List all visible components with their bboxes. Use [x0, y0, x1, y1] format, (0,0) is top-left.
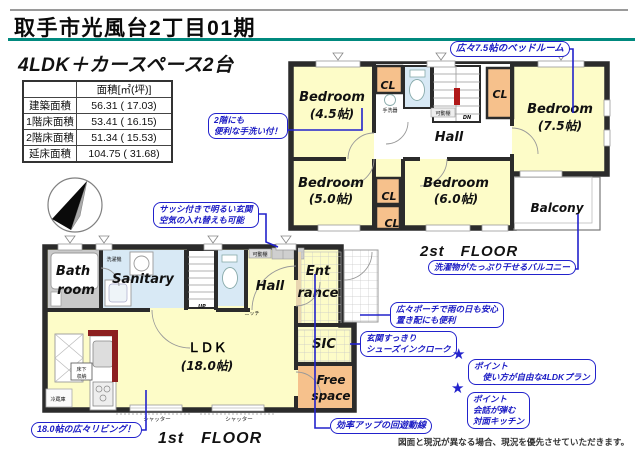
table-row: 建築面積 56.31 ( 17.03) — [23, 98, 172, 114]
balcony-label: Balcony — [530, 201, 584, 215]
floor-storage-label-1: 床下 — [76, 366, 86, 373]
closet-label: CL — [384, 217, 399, 230]
shutter-label: シャッター — [225, 415, 253, 423]
callout-line: 対面キッチン — [473, 416, 524, 427]
kitchen-wall-red — [88, 330, 118, 336]
washer-label: 洗濯機 — [106, 256, 121, 263]
table-row: 延床面積 104.75 ( 31.68) — [23, 146, 172, 163]
toilet-room-1f — [218, 250, 246, 306]
closet-label: CL — [492, 88, 507, 101]
stove-icon — [93, 382, 113, 406]
bedroom60-label: Bedroom — [423, 176, 489, 191]
hand-basin-label: 手洗器 — [382, 107, 397, 114]
fridge-label: 冷蔵庫 — [50, 396, 65, 403]
hand-basin-icon — [385, 95, 396, 106]
toilet-room-2f — [404, 66, 431, 108]
bedroom50-label: Bedroom — [298, 176, 364, 191]
area-table-header: 面積[㎡(坪)] — [77, 81, 173, 98]
callout-hand-basin: 2階にも 便利な手洗い付！ — [208, 113, 288, 139]
callout-line: 2階にも — [214, 115, 282, 126]
stair-rail-mark — [454, 88, 460, 105]
row-value: 104.75 ( 31.68) — [77, 146, 173, 163]
bedroom75-label: Bedroom — [527, 102, 593, 117]
sink-icon — [93, 341, 113, 367]
row-value: 53.41 ( 16.15) — [77, 114, 173, 130]
ldk-label: ＬＤＫ — [187, 341, 226, 356]
north-compass-icon — [48, 178, 102, 232]
movable-shelf-label-1f: 可動棚 — [252, 251, 267, 258]
up-stairs-label: UP — [198, 304, 206, 310]
bath-label-1: Bath — [56, 264, 90, 279]
entrance-label-2: rance — [298, 286, 339, 301]
ldk-size-label: (18.0帖) — [181, 359, 234, 373]
area-table: 面積[㎡(坪)] 建築面積 56.31 ( 17.03) 1階床面積 53.41… — [22, 80, 173, 163]
down-stairs-label: DN — [463, 115, 472, 121]
porch — [344, 250, 378, 322]
toilet-tank-icon — [410, 70, 425, 77]
hall1f-label: Hall — [256, 279, 285, 294]
floor1-name: 1st FLOOR — [158, 424, 262, 448]
movable-shelf-label: 可動棚 — [435, 110, 450, 117]
callout-sic: 玄関すっきり シューズインクローク — [360, 331, 457, 357]
point-heading: ポイント — [473, 394, 524, 405]
bedroom50-size: (5.0帖) — [309, 192, 353, 206]
stairs-1f — [188, 250, 216, 308]
area-table-corner — [23, 81, 77, 98]
toilet-bowl-icon — [410, 80, 425, 101]
free-space-label-1: Free — [316, 373, 345, 387]
bath-label-2: room — [57, 283, 95, 298]
bedroom75-size: (7.5帖) — [538, 119, 582, 133]
shutter-label: シャッター — [143, 415, 171, 423]
second-floor-plan: Bedroom (4.5帖) Bedroom (7.5帖) Bedroom (5… — [291, 53, 610, 231]
entrance-label-1: Ent — [306, 264, 331, 279]
callout-line: 広々ポーチで雨の日も安心 — [396, 304, 498, 315]
row-label: 2階床面積 — [23, 130, 77, 146]
callout-line: 便利な手洗い付！ — [214, 126, 282, 137]
hall2f-label: Hall — [435, 130, 464, 145]
callout-line: 置き配にも便利 — [396, 315, 498, 326]
callout-point2: ポイント 会話が弾む 対面キッチン — [467, 392, 530, 429]
callout-line: シューズインクローク — [366, 344, 451, 355]
callout-line: 会話が弾む — [473, 405, 524, 416]
closet-label: CL — [381, 190, 396, 203]
callout-line: 玄関すっきり — [366, 333, 451, 344]
floor2-name: 2st FLOOR — [420, 240, 518, 261]
sanitary-label: Sanitary — [112, 272, 174, 287]
first-floor-plan: Bath room 洗濯機 Sanitary UP 可動棚 Hall ニッチ E… — [45, 236, 378, 423]
callout-bedroom75: 広々7.5帖のベッドルーム — [450, 41, 570, 57]
free-space-label-2: space — [311, 389, 350, 403]
bedroom45-size: (4.5帖) — [310, 107, 354, 121]
flyer-page: 取手市光風台2丁目01期 4LDK＋カースペース2台 面積[㎡(坪)] 建築面積… — [0, 0, 640, 453]
bedroom60-size: (6.0帖) — [434, 192, 478, 206]
callout-line: 空気の入れ替えも可能 — [159, 215, 253, 226]
table-row: 2階床面積 51.34 ( 15.53) — [23, 130, 172, 146]
row-value: 56.31 ( 17.03) — [77, 98, 173, 114]
closet-label: CL — [380, 79, 395, 92]
point-heading: ポイント — [474, 361, 590, 372]
row-label: 建築面積 — [23, 98, 77, 114]
row-value: 51.34 ( 15.53) — [77, 130, 173, 146]
callout-balcony: 洗濯物がたっぷり干せるバルコニー — [428, 260, 576, 275]
callout-sash: サッシ付きで明るい玄関 空気の入れ替えも可能 — [153, 202, 259, 228]
table-row: 面積[㎡(坪)] — [23, 81, 172, 98]
star-icon: ★ — [452, 347, 465, 362]
bedroom45-label: Bedroom — [299, 90, 365, 105]
row-label: 1階床面積 — [23, 114, 77, 130]
floor-storage-label-2: 収納 — [76, 373, 86, 380]
callout-point1: ポイント 使い方が自由な4LDKプラン — [468, 359, 596, 385]
star-icon: ★ — [451, 381, 464, 396]
callout-circulation: 効率アップの回遊動線 — [330, 418, 432, 434]
disclaimer-text: 図面と現況が異なる場合、現況を優先させていただきます。 — [398, 436, 629, 448]
callout-living: 18.0帖の広々リビング！ — [31, 422, 142, 438]
table-row: 1階床面積 53.41 ( 16.15) — [23, 114, 172, 130]
kitchen-wall-red — [112, 336, 118, 382]
bath-room — [48, 250, 101, 308]
callout-porch: 広々ポーチで雨の日も安心 置き配にも便利 — [390, 302, 504, 328]
callout-line: サッシ付きで明るい玄関 — [159, 204, 253, 215]
niche-label: ニッチ — [244, 311, 259, 317]
callout-line: 使い方が自由な4LDKプラン — [474, 372, 590, 383]
row-label: 延床面積 — [23, 146, 77, 163]
floorplan-canvas: Bedroom (4.5帖) Bedroom (7.5帖) Bedroom (5… — [0, 0, 640, 453]
